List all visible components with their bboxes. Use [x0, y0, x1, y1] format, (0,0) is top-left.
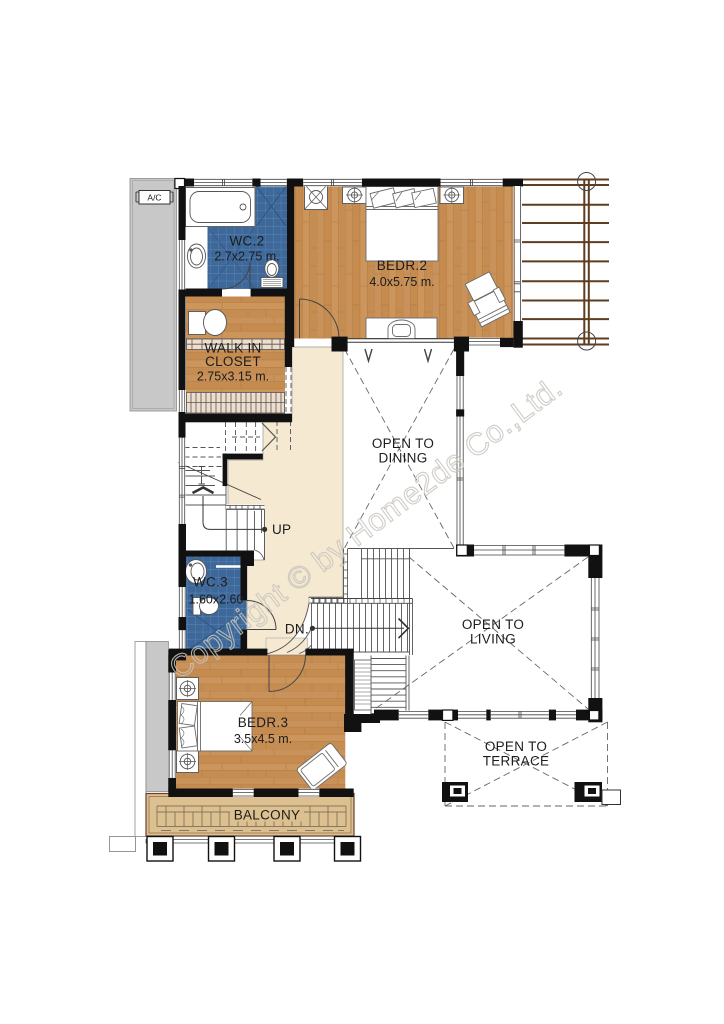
svg-text:BALCONY: BALCONY — [234, 808, 301, 823]
svg-text:2.7x2.75 m.: 2.7x2.75 m. — [214, 250, 279, 264]
svg-text:3.5x4.5 m.: 3.5x4.5 m. — [234, 732, 292, 746]
svg-text:LIVING: LIVING — [470, 632, 516, 647]
svg-text:OPEN TO: OPEN TO — [462, 617, 524, 632]
svg-text:2.75x3.15 m.: 2.75x3.15 m. — [197, 370, 269, 384]
svg-text:DINING: DINING — [378, 451, 427, 466]
svg-text:OPEN TO: OPEN TO — [372, 436, 434, 451]
svg-text:CLOSET: CLOSET — [205, 354, 261, 369]
svg-text:BEDR.3: BEDR.3 — [238, 715, 289, 730]
svg-text:OPEN TO: OPEN TO — [485, 739, 547, 754]
svg-text:4.0x5.75 m.: 4.0x5.75 m. — [369, 275, 434, 289]
svg-text:A/C: A/C — [147, 193, 161, 203]
svg-text:WC.2: WC.2 — [230, 234, 265, 249]
svg-text:WC.3: WC.3 — [193, 575, 228, 590]
svg-text:TERRACE: TERRACE — [483, 754, 550, 769]
svg-text:DN.: DN. — [285, 622, 309, 637]
svg-text:BEDR.2: BEDR.2 — [377, 258, 428, 273]
svg-text:UP: UP — [272, 522, 291, 537]
